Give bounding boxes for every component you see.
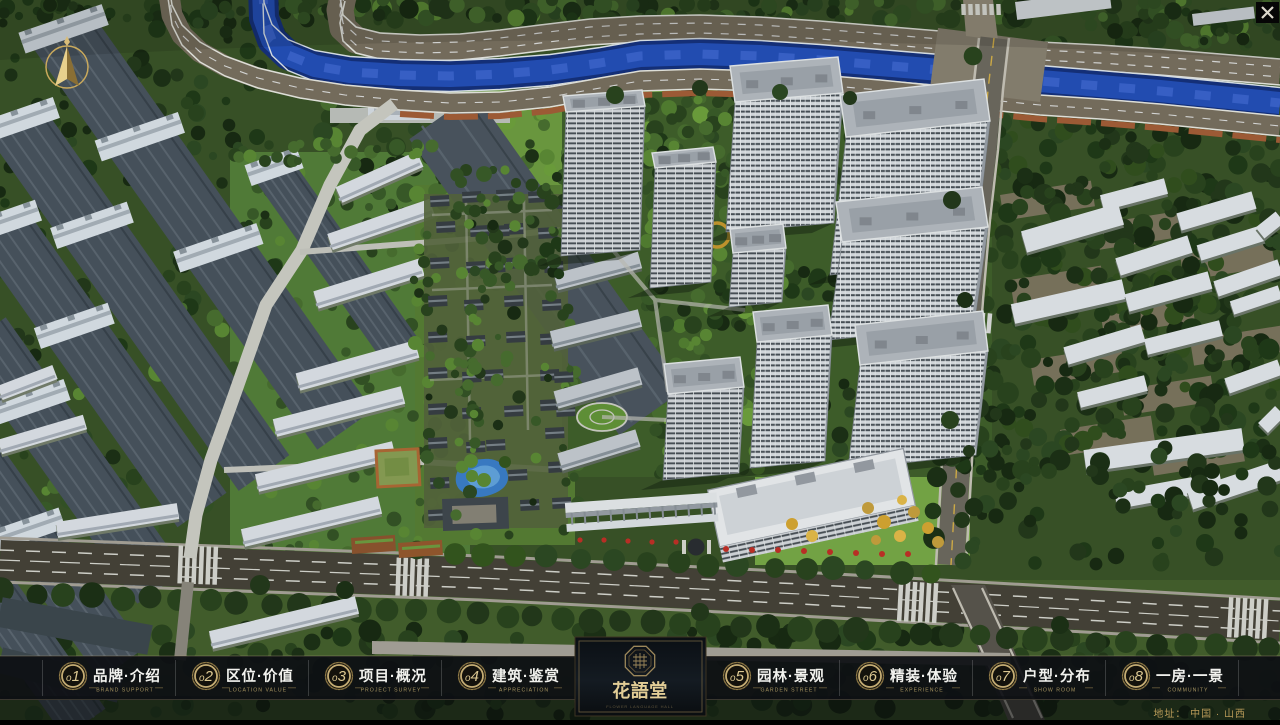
svg-text:项目·概况: 项目·概况 [359, 667, 427, 685]
svg-text:GARDEN STREET: GARDEN STREET [760, 688, 817, 694]
svg-text:区位·价值: 区位·价值 [226, 667, 294, 685]
svg-text:建筑·鉴赏: 建筑·鉴赏 [492, 667, 560, 685]
svg-text:一房·一景: 一房·一景 [1156, 667, 1224, 685]
svg-text:品牌·介绍: 品牌·介绍 [93, 667, 161, 685]
svg-text:地址： 中国 · 山西: 地址： 中国 · 山西 [1153, 707, 1246, 720]
svg-text:SHOW ROOM: SHOW ROOM [1034, 688, 1077, 694]
svg-text:园林·景观: 园林·景观 [757, 667, 825, 685]
svg-text:精装·体验: 精装·体验 [890, 667, 958, 685]
svg-text:PROJECT SURVEY: PROJECT SURVEY [361, 688, 422, 694]
svg-text:户型·分布: 户型·分布 [1023, 667, 1091, 685]
svg-text:花語堂: 花語堂 [612, 680, 668, 701]
svg-text:FLOWER LANGUAGE HALL: FLOWER LANGUAGE HALL [606, 704, 674, 709]
svg-text:APPRECIATION: APPRECIATION [499, 688, 549, 694]
svg-text:EXPERIENCE: EXPERIENCE [900, 688, 943, 694]
svg-text:COMMUNITY: COMMUNITY [1168, 688, 1209, 694]
svg-text:LOCATION VALUE: LOCATION VALUE [229, 688, 287, 694]
svg-text:BRAND SUPPORT: BRAND SUPPORT [96, 688, 154, 694]
